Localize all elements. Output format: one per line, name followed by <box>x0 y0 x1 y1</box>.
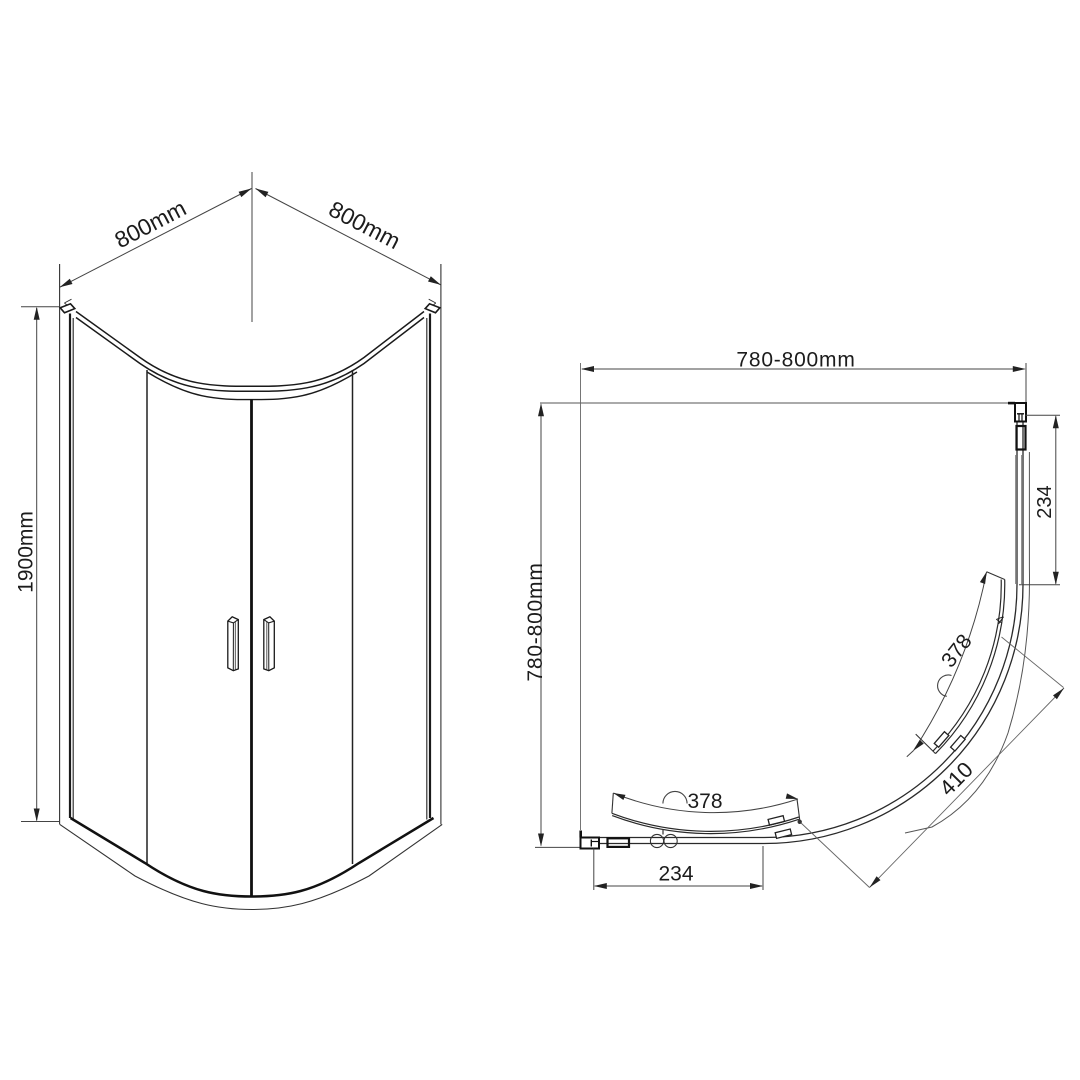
svg-text:378: 378 <box>687 790 722 813</box>
svg-text:234: 234 <box>658 863 693 886</box>
svg-text:410: 410 <box>934 757 978 801</box>
svg-text:780-800mm: 780-800mm <box>524 562 547 681</box>
svg-text:4: 4 <box>993 612 1007 627</box>
svg-text:780-800mm: 780-800mm <box>736 349 855 372</box>
svg-text:234: 234 <box>1034 485 1056 518</box>
svg-text:800mm: 800mm <box>110 195 190 253</box>
svg-text:1900mm: 1900mm <box>15 511 38 593</box>
svg-text:378: 378 <box>937 630 977 672</box>
